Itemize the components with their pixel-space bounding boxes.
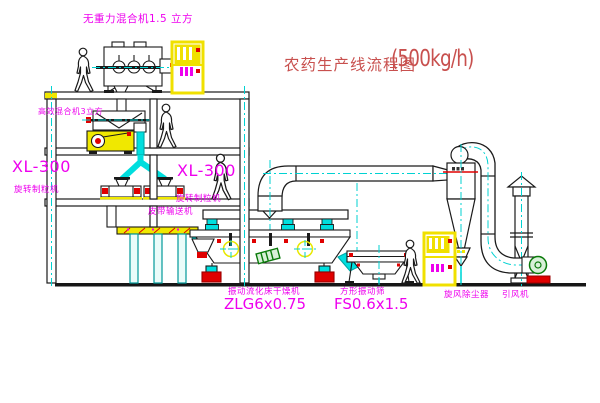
label-fan: 引风机 [502, 291, 529, 300]
y-chute [122, 155, 165, 179]
label-dryer-model: ZLG6x0.75 [224, 297, 306, 312]
cabinet-label-marks [180, 67, 193, 76]
high-efficiency-mixer [82, 111, 155, 155]
worker-floor2 [158, 104, 176, 147]
discharge-chute [107, 206, 116, 227]
gravity-free-mixer [92, 42, 174, 93]
control-cabinet-cyclone [424, 233, 455, 285]
control-cabinet-roof [172, 42, 203, 93]
label-screen-model: FS0.6x1.5 [334, 297, 408, 312]
label-granulator-right-name: 旋转制粒机 [176, 195, 221, 204]
granulator-left [100, 177, 142, 200]
label-granulator-right-model: XL-300 [177, 163, 236, 179]
worker-roof [75, 48, 93, 91]
label-granulator-left-model: XL-300 [12, 159, 71, 175]
fluid-bed-dryer [190, 230, 358, 282]
label-granulator-left-name: 旋转制粒机 [14, 186, 59, 195]
label-high-mixer: 高效混合机3立方 [38, 108, 103, 116]
diagram-title-capacity: (500kg/h) [391, 46, 473, 72]
worker-ground [402, 240, 420, 283]
flow-diagram-canvas: 农药生产线流程图 (500kg/h) 无重力混合机1.5 立方 高效混合机3立方… [0, 0, 600, 403]
cyclone-tiny-marks [452, 167, 464, 171]
label-cyclone: 旋风除尘器 [444, 291, 489, 300]
label-gravity-mixer: 无重力混合机1.5 立方 [83, 14, 193, 25]
cabinet-label-marks [431, 264, 444, 272]
label-belt-conveyor: 皮带输送机 [148, 208, 193, 217]
